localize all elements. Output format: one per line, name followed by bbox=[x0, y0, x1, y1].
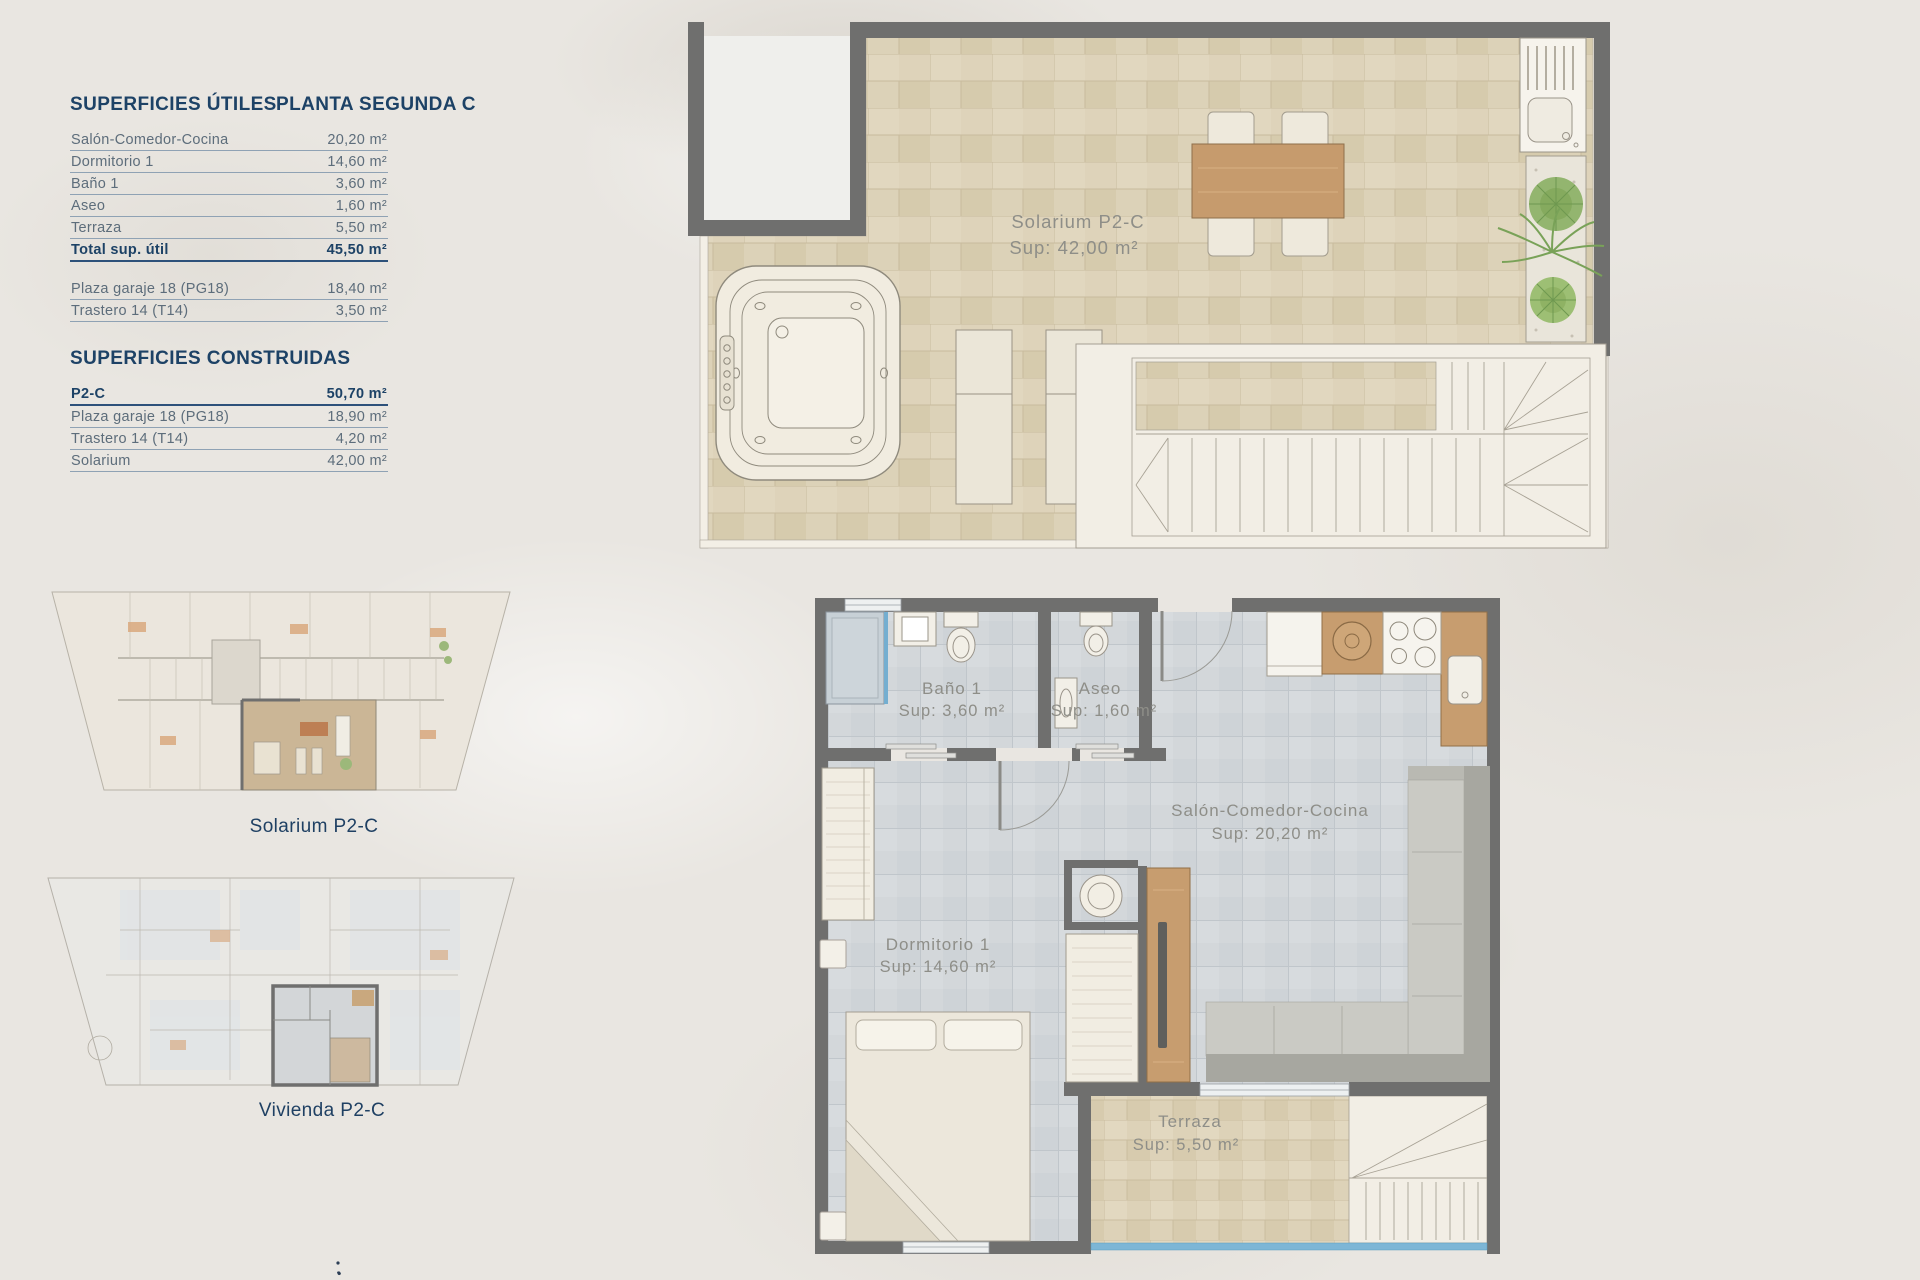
solarium-floor-plan: Solarium P2-C Sup: 42,00 m² bbox=[688, 16, 1612, 556]
table-row: Baño 1 3,60 m² bbox=[70, 173, 388, 195]
jacuzzi bbox=[716, 266, 900, 480]
table-row: Solarium 42,00 m² bbox=[70, 450, 388, 472]
solarium-label: Solarium P2-C bbox=[1011, 211, 1144, 232]
row-value: 1,60 m² bbox=[336, 198, 387, 214]
table-row: Aseo 1,60 m² bbox=[70, 195, 388, 217]
table-row-total: Total sup. útil 45,50 m² bbox=[70, 239, 388, 262]
row-value: 14,60 m² bbox=[327, 154, 387, 170]
table-row: Plaza garaje 18 (PG18) 18,90 m² bbox=[70, 406, 388, 428]
mini-plans bbox=[30, 578, 530, 1108]
row-value: 18,40 m² bbox=[327, 281, 387, 297]
table-row: Terraza 5,50 m² bbox=[70, 217, 388, 239]
row-value: 50,70 m² bbox=[327, 386, 387, 402]
surface-tables: SUPERFICIES ÚTILES PLANTA SEGUNDA C Saló… bbox=[70, 94, 388, 472]
row-label: Trastero 14 (T14) bbox=[71, 303, 188, 319]
row-label: Plaza garaje 18 (PG18) bbox=[71, 409, 229, 425]
aseo-sup-label: Sup: 1,60 m² bbox=[1051, 702, 1157, 720]
closet bbox=[822, 768, 874, 920]
table-row: Trastero 14 (T14) 4,20 m² bbox=[70, 428, 388, 450]
dormitorio-label: Dormitorio 1 bbox=[886, 935, 991, 954]
table-header: SUPERFICIES ÚTILES PLANTA SEGUNDA C bbox=[70, 94, 388, 116]
table-title-construidas: SUPERFICIES CONSTRUIDAS bbox=[70, 348, 388, 370]
plant-bush-icon bbox=[1529, 177, 1583, 231]
row-label: Baño 1 bbox=[71, 176, 119, 192]
row-value: 5,50 m² bbox=[336, 220, 387, 236]
row-value: 42,00 m² bbox=[327, 453, 387, 469]
row-label: P2-C bbox=[71, 386, 105, 402]
construidas-rows: P2-C 50,70 m² Plaza garaje 18 (PG18) 18,… bbox=[70, 383, 388, 472]
washbasin bbox=[894, 612, 936, 646]
dormitorio-sup-label: Sup: 14,60 m² bbox=[880, 958, 997, 976]
terraza-label: Terraza bbox=[1158, 1112, 1222, 1131]
mini-plan-caption-vivienda: Vivienda P2-C bbox=[212, 1100, 432, 1122]
apartment-floor-plan: Baño 1 Sup: 3,60 m² Aseo Sup: 1,60 m² Sa… bbox=[808, 590, 1504, 1262]
mini-highlight-solarium bbox=[242, 700, 376, 790]
row-value: 4,20 m² bbox=[336, 431, 387, 447]
row-label: Trastero 14 (T14) bbox=[71, 431, 188, 447]
cooktop bbox=[1383, 612, 1441, 674]
aseo-label: Aseo bbox=[1079, 679, 1122, 698]
floor-title: PLANTA SEGUNDA C bbox=[276, 94, 476, 116]
row-value: 20,20 m² bbox=[327, 132, 387, 148]
mini-plan-solarium bbox=[52, 592, 510, 790]
open-notch bbox=[704, 36, 852, 220]
stairs bbox=[1076, 344, 1606, 548]
table-row: Plaza garaje 18 (PG18) 18,40 m² bbox=[70, 278, 388, 300]
row-label: Terraza bbox=[71, 220, 121, 236]
table-row: Trastero 14 (T14) 3,50 m² bbox=[70, 300, 388, 322]
terraza-sup-label: Sup: 5,50 m² bbox=[1133, 1136, 1239, 1154]
bed bbox=[846, 1012, 1030, 1241]
table-row: Salón-Comedor-Cocina 20,20 m² bbox=[70, 129, 388, 151]
row-value: 3,50 m² bbox=[336, 303, 387, 319]
mini-highlight-vivienda bbox=[273, 986, 377, 1085]
row-value: 18,90 m² bbox=[327, 409, 387, 425]
row-label: Total sup. útil bbox=[71, 242, 169, 258]
washing-machine bbox=[1080, 875, 1122, 917]
salon-sup-label: Sup: 20,20 m² bbox=[1212, 825, 1329, 843]
row-label: Salón-Comedor-Cocina bbox=[71, 132, 229, 148]
row-value: 45,50 m² bbox=[327, 242, 387, 258]
exterior-glazing bbox=[1091, 1243, 1487, 1250]
table-row: P2-C 50,70 m² bbox=[70, 383, 388, 406]
outdoor-sink-unit bbox=[1520, 38, 1586, 152]
tv-unit bbox=[1147, 868, 1190, 1082]
wardrobe bbox=[1066, 934, 1138, 1082]
row-label: Plaza garaje 18 (PG18) bbox=[71, 281, 229, 297]
shower bbox=[826, 612, 888, 704]
table-title: SUPERFICIES ÚTILES bbox=[70, 94, 276, 116]
plant-bush-icon bbox=[1530, 277, 1576, 323]
row-value: 3,60 m² bbox=[336, 176, 387, 192]
row-label: Dormitorio 1 bbox=[71, 154, 154, 170]
bano-label: Baño 1 bbox=[922, 679, 982, 698]
row-label: Aseo bbox=[71, 198, 105, 214]
table-row: Dormitorio 1 14,60 m² bbox=[70, 151, 388, 173]
toilet bbox=[944, 612, 978, 662]
stairs-floor bbox=[1349, 1096, 1487, 1243]
row-label: Solarium bbox=[71, 453, 131, 469]
mini-plan-vivienda bbox=[48, 878, 514, 1085]
solarium-sup-label: Sup: 42,00 m² bbox=[1009, 237, 1138, 258]
terrace-glazing bbox=[1200, 1084, 1349, 1096]
utiles-rows: Salón-Comedor-Cocina 20,20 m² Dormitorio… bbox=[70, 129, 388, 322]
mini-plan-caption-solarium: Solarium P2-C bbox=[204, 816, 424, 838]
salon-label: Salón-Comedor-Cocina bbox=[1171, 801, 1369, 820]
logo-mark bbox=[330, 1258, 354, 1280]
bano-sup-label: Sup: 3,60 m² bbox=[899, 702, 1005, 720]
